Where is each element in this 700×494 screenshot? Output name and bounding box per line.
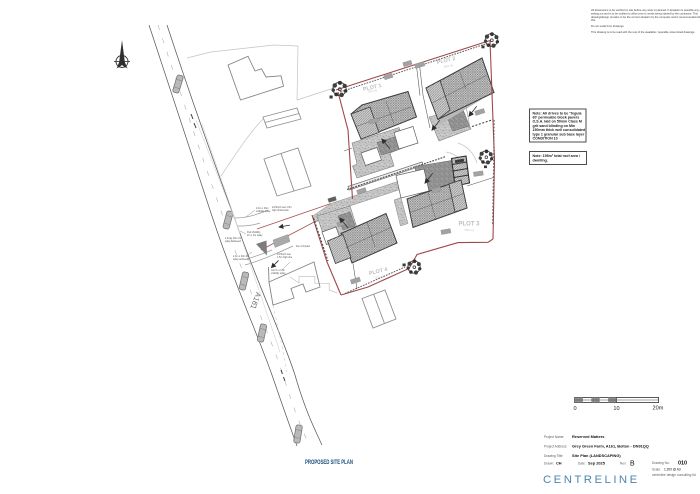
svg-text:CONDITION 10: CONDITION 10: [533, 137, 558, 141]
svg-text:line of impact: line of impact: [296, 245, 310, 248]
svg-text:010: 010: [678, 461, 687, 467]
svg-text:splay achieved: splay achieved: [233, 258, 249, 261]
svg-text:setting out and is to be notif: setting out and is to be notified to off…: [591, 11, 699, 15]
svg-text:drawing/design remains to be t: drawing/design remains to be the current…: [591, 15, 700, 19]
svg-text:CENTRELINE: CENTRELINE: [543, 474, 640, 486]
svg-text:Project Name:: Project Name:: [544, 435, 564, 439]
svg-text:This drawing is to be read wit: This drawing is to be read with the rest…: [591, 30, 695, 34]
svg-text:Sep 2025: Sep 2025: [588, 461, 606, 466]
svg-text:All dimensions to be verified: All dimensions to be verified on site be…: [591, 8, 700, 12]
svg-text:1.5m high obs: 1.5m high obs: [277, 256, 293, 259]
svg-text:centreline design consulting l: centreline design consulting ltd: [652, 473, 696, 477]
svg-text:this.: this.: [591, 18, 596, 22]
svg-text:Note: 195m² total roof area /: Note: 195m² total roof area /: [533, 154, 581, 158]
svg-text:PROPOSED SITE PLAN: PROPOSED SITE PLAN: [305, 459, 353, 466]
svg-text:10: 10: [613, 406, 619, 412]
svg-text:splay achieved: splay achieved: [225, 240, 241, 243]
svg-text:visibility splay: visibility splay: [271, 272, 286, 275]
svg-text:B: B: [630, 461, 635, 468]
svg-text:Do not scale from drawings.: Do not scale from drawings.: [591, 24, 625, 28]
svg-text:2m x 2m splay: 2m x 2m splay: [247, 234, 263, 237]
svg-text:Scale:: Scale:: [652, 468, 661, 472]
svg-text:Drawing No:: Drawing No:: [652, 461, 670, 465]
svg-text:Rev:: Rev:: [620, 462, 627, 466]
svg-text:20m: 20m: [653, 406, 664, 412]
svg-text:Grey Green Farm, A161, Belton: Grey Green Farm, A161, Belton - DN91QQ: [572, 444, 649, 449]
svg-text:PLOT 3: PLOT 3: [458, 222, 480, 228]
svg-text:Date:: Date:: [578, 462, 586, 466]
svg-text:dwelling.: dwelling.: [533, 158, 548, 162]
svg-text:1:200 @ A3: 1:200 @ A3: [664, 468, 681, 472]
svg-text:Drawn:: Drawn:: [544, 462, 554, 466]
svg-text:Project Address:: Project Address:: [544, 445, 567, 449]
svg-text:CH: CH: [556, 461, 562, 466]
svg-text:Drawing Title:: Drawing Title:: [544, 454, 563, 458]
svg-text:TBA sq: TBA sq: [464, 228, 474, 232]
svg-text:Reserved Matters: Reserved Matters: [572, 434, 604, 439]
svg-text:Site Plan (LANDSCAPING): Site Plan (LANDSCAPING): [572, 453, 621, 458]
svg-text:high obstruction: high obstruction: [272, 209, 290, 212]
svg-text:0: 0: [573, 406, 576, 412]
svg-text:visibility splay: visibility splay: [256, 210, 271, 213]
